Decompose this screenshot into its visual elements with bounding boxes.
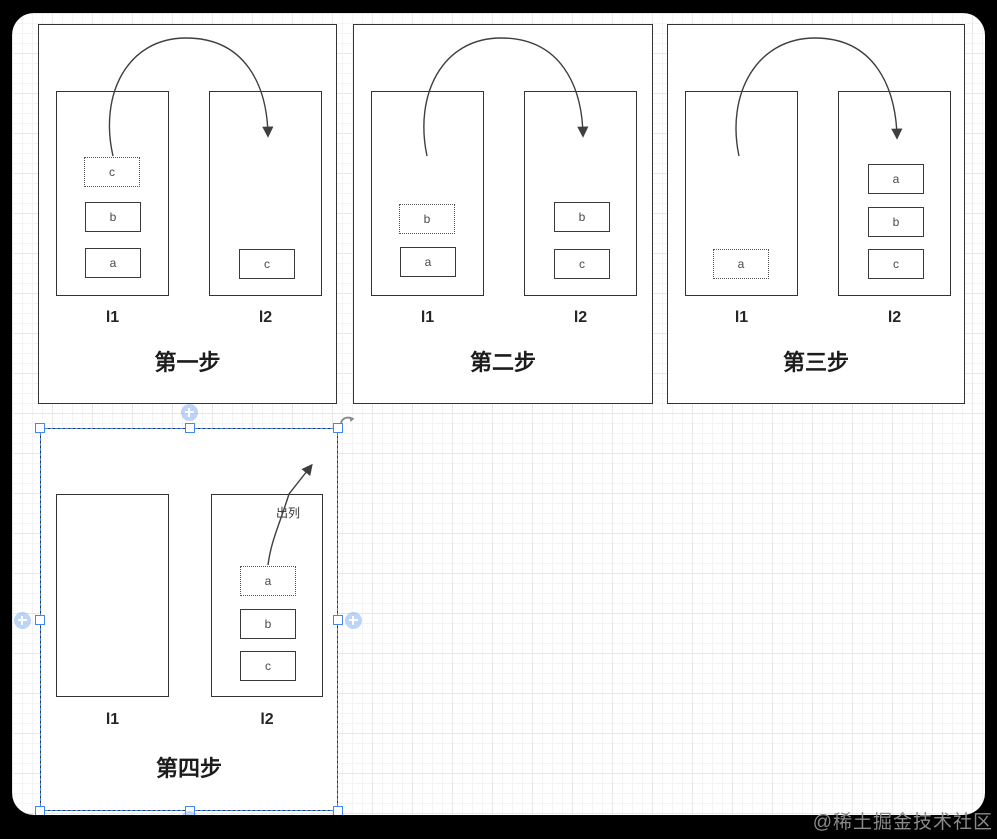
direction-arrow-up[interactable] — [181, 404, 198, 421]
resize-handle-e[interactable] — [333, 615, 343, 625]
item-label: a — [265, 574, 272, 588]
item-box[interactable]: a — [400, 247, 456, 277]
step-title: 第四步 — [41, 751, 337, 783]
item-box[interactable]: b — [240, 609, 296, 639]
item-label: c — [264, 257, 270, 271]
list-l2[interactable]: b c — [524, 91, 637, 296]
step-title: 第三步 — [668, 345, 964, 377]
screenshot-root: { "app": {"type": "diagram-editor-canvas… — [0, 0, 997, 839]
dequeue-edge-label: 出列 — [271, 504, 305, 521]
step-panel-2[interactable]: b a b c l1 l2 第二步 — [353, 24, 653, 404]
watermark-text: @稀土掘金技术社区 — [813, 807, 993, 834]
list-l1-label: l1 — [56, 711, 169, 729]
item-box[interactable]: c — [239, 249, 295, 279]
step-title: 第二步 — [354, 345, 652, 377]
diagram-canvas[interactable]: c b a c l1 l2 第一步 b a b c l1 l2 — [12, 13, 985, 815]
list-l2-label: l2 — [209, 309, 322, 327]
list-l2-label: l2 — [211, 711, 323, 729]
item-box[interactable]: b — [868, 207, 924, 237]
item-box[interactable]: a — [868, 164, 924, 194]
list-l2[interactable]: a b c — [838, 91, 951, 296]
item-label: a — [425, 255, 432, 269]
item-box[interactable]: c — [868, 249, 924, 279]
list-l1-label: l1 — [56, 309, 169, 327]
list-l2[interactable]: c — [209, 91, 322, 296]
step-title: 第一步 — [39, 345, 336, 377]
item-label: c — [893, 257, 899, 271]
list-l1[interactable]: c b a — [56, 91, 169, 296]
item-box-ghost[interactable]: c — [84, 157, 140, 187]
item-label: b — [893, 215, 900, 229]
item-label: c — [265, 659, 271, 673]
item-box[interactable]: c — [240, 651, 296, 681]
list-l1-label: l1 — [685, 309, 798, 327]
item-label: c — [109, 165, 115, 179]
resize-handle-nw[interactable] — [35, 423, 45, 433]
item-box-ghost[interactable]: a — [240, 566, 296, 596]
list-l1[interactable] — [56, 494, 169, 697]
item-box-ghost[interactable]: b — [399, 204, 455, 234]
item-label: b — [579, 210, 586, 224]
list-l2-label: l2 — [838, 309, 951, 327]
step-panel-3[interactable]: a a b c l1 l2 第三步 — [667, 24, 965, 404]
resize-handle-se[interactable] — [333, 806, 343, 815]
item-box[interactable]: b — [85, 202, 141, 232]
rotate-handle-icon[interactable] — [338, 410, 356, 426]
resize-handle-n[interactable] — [185, 423, 195, 433]
list-l1-label: l1 — [371, 309, 484, 327]
direction-arrow-left[interactable] — [14, 612, 31, 629]
item-label: c — [579, 257, 585, 271]
direction-arrow-right[interactable] — [345, 612, 362, 629]
item-label: a — [893, 172, 900, 186]
item-label: b — [424, 212, 431, 226]
item-box[interactable]: b — [554, 202, 610, 232]
item-box[interactable]: a — [85, 248, 141, 278]
item-label: a — [738, 257, 745, 271]
item-label: a — [110, 256, 117, 270]
resize-handle-w[interactable] — [35, 615, 45, 625]
item-label: b — [265, 617, 272, 631]
list-l1[interactable]: a — [685, 91, 798, 296]
item-label: b — [110, 210, 117, 224]
list-l1[interactable]: b a — [371, 91, 484, 296]
step-panel-1[interactable]: c b a c l1 l2 第一步 — [38, 24, 337, 404]
list-l2[interactable]: a b c — [211, 494, 323, 697]
step-panel-4-selected[interactable]: a b c l1 l2 第四步 出列 — [40, 428, 338, 811]
list-l2-label: l2 — [524, 309, 637, 327]
item-box[interactable]: c — [554, 249, 610, 279]
item-box-ghost[interactable]: a — [713, 249, 769, 279]
resize-handle-sw[interactable] — [35, 806, 45, 815]
